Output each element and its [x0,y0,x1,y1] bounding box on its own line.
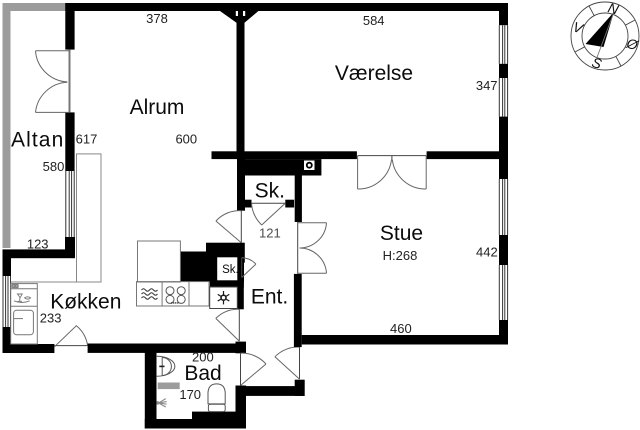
svg-text:617: 617 [76,132,98,147]
svg-text:347: 347 [476,78,498,93]
svg-text:Ent.: Ent. [251,286,288,309]
svg-text:123: 123 [27,236,49,251]
svg-text:Bad: Bad [184,362,221,385]
svg-text:580: 580 [43,159,65,174]
svg-text:Sk.: Sk. [255,180,285,203]
svg-text:121: 121 [259,226,281,241]
svg-text:Alrum: Alrum [130,96,185,119]
svg-text:600: 600 [175,132,197,147]
svg-text:Sk.: Sk. [222,264,239,276]
svg-text:378: 378 [146,11,168,26]
svg-text:584: 584 [363,13,385,28]
svg-text:233: 233 [40,311,62,326]
svg-text:H:268: H:268 [383,248,418,263]
svg-text:200: 200 [192,350,214,365]
svg-text:Altan: Altan [11,129,64,152]
svg-text:170: 170 [179,387,201,402]
svg-text:460: 460 [390,321,412,336]
svg-text:442: 442 [476,245,498,260]
svg-text:Værelse: Værelse [335,62,413,85]
svg-text:Stue: Stue [380,222,423,245]
